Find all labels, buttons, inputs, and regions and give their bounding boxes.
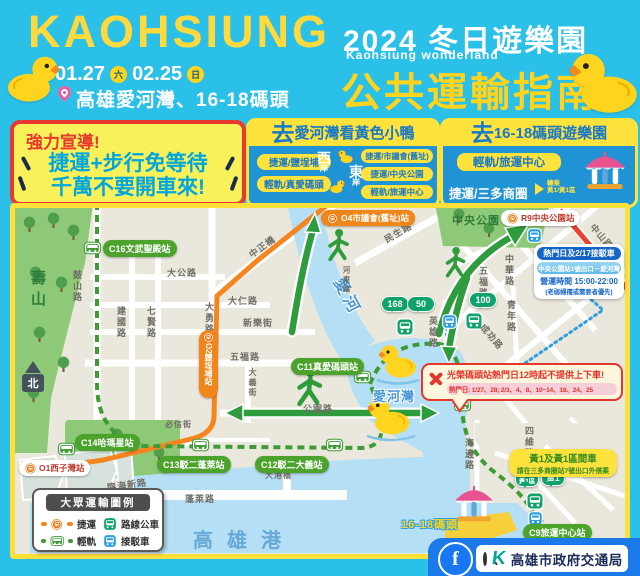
metro-line-icon <box>41 522 47 526</box>
road-label: 河東路 <box>341 266 352 295</box>
road-label: 青年路 <box>505 300 518 333</box>
transit-guide-poster: KAOHSIUNG 01.27 六 02.25 日 高雄愛河灣、16-18碼頭 … <box>0 0 640 576</box>
footer-search-bar: K 高雄市政府交通局 <box>476 545 628 572</box>
bus-stop-50: 50 <box>407 296 435 312</box>
bay-east-item: 輕軌/旅運中心 <box>361 185 433 199</box>
road-label: 大義街 <box>247 368 258 398</box>
guide-title: 公共運輸指南 <box>341 60 599 118</box>
west-coast-label: 西 岸 <box>317 151 331 173</box>
pier-item-lrt: 輕軌/旅運中心 <box>457 153 561 171</box>
area-label-harbor: 高雄港 <box>193 524 295 553</box>
lrt-line-icon <box>41 539 46 543</box>
metro-icon <box>507 213 518 224</box>
pier-item-metro: 捷運/三多商圈 <box>449 183 527 202</box>
compass-arrow-icon <box>25 353 41 373</box>
metro-icon <box>25 463 36 474</box>
road-label: 建國路 <box>115 306 128 339</box>
pier-box-title: 去16-18碼頭遊樂園 <box>443 121 635 146</box>
area-label-pier: 16-18碼頭 <box>401 516 458 532</box>
station-r9: R9中央公園站 <box>501 210 580 226</box>
y1-note: 黃1及黃1區間車 請在三多商圈站7號出口外搭乘 <box>509 449 617 477</box>
legend-item-lrt: 輕軌 <box>41 534 96 548</box>
shuttle-hours: 營運時間 15:00-22:00 <box>537 276 621 287</box>
brand-title: KAOHSIUNG <box>28 6 330 58</box>
legend-item-bus: 路線公車 <box>103 517 159 531</box>
area-label-central-park: 中央公園 <box>452 212 500 228</box>
road-label: 新樂街 <box>243 316 273 329</box>
road-label: 公園路 <box>303 402 333 415</box>
duck-icon-small <box>329 179 346 194</box>
tram-icon <box>50 535 64 547</box>
bureau-logo-icon: K <box>490 548 507 570</box>
bus-stop-168: 168 <box>381 296 409 312</box>
metro-icon <box>51 518 63 531</box>
shuttle-info-box: 熱門日及2/17接駁車 中央公園站1號出口－愛河灣 營運時間 15:00-22:… <box>534 244 624 299</box>
bus-stop-100: 100 <box>469 292 497 308</box>
station-c11: C11真愛碼頭站 <box>291 358 364 375</box>
station-o1: O1西子灣站 <box>19 460 90 476</box>
agency-name: 高雄市政府交通局 <box>511 549 623 569</box>
warning-bubble: 光榮碼頭站熱門日12時起不提供上下車! 熱門日: 1/27、28; 2/3、4、… <box>421 363 623 401</box>
area-label-shoushan: 壽山 <box>27 270 48 312</box>
notice-box: 強力宣導! 捷運+步行免等待 千萬不要開車來! <box>10 120 246 206</box>
duck-icon-right <box>566 48 640 117</box>
metro-line-icon <box>67 522 73 526</box>
event-dates: 01.27 六 02.25 日 <box>55 63 204 86</box>
shuttle-note: (老弱婦孺或需要者優先) <box>537 287 621 296</box>
facebook-icon: f <box>438 542 473 576</box>
duck-icon-left <box>4 52 62 105</box>
road-label: 五福路 <box>230 350 260 363</box>
road-label: 七賢路 <box>145 306 158 339</box>
road-label: 鼓山路 <box>71 270 84 303</box>
metro-icon <box>203 332 214 343</box>
station-c14: C14哈瑪星站 <box>75 434 140 451</box>
station-o2: O2鹽埕埔站 <box>199 330 218 398</box>
bay-transit-box: 去愛河灣看黃色小鴨 捷運/鹽埕埔 輕軌/真愛碼頭 西 岸 東 岸 捷運/市議會(… <box>246 118 440 208</box>
pier-transfer-note: 轉乘 黃1/黃1區 <box>547 180 576 195</box>
road-label: 大公路 <box>167 266 197 279</box>
carousel-icon <box>583 149 627 195</box>
area-label-bay: 愛河灣 <box>373 386 415 405</box>
road-label: 蓬萊路 <box>185 492 215 505</box>
date-start: 01.27 <box>55 63 105 86</box>
road-label: 英雄路 <box>427 316 440 349</box>
bay-west-item: 輕軌/真愛碼頭 <box>257 176 331 192</box>
station-c12: C12駁二大義站 <box>255 456 329 473</box>
bay-east-item: 捷運/中央公園 <box>361 167 433 181</box>
pier-transit-box: 去16-18碼頭遊樂園 輕軌/旅運中心 捷運/三多商圈 轉乘 黃1/黃1區 <box>440 118 638 208</box>
bay-east-item: 捷運/市議會(舊址) <box>361 149 433 163</box>
pier-box-title-prefix: 去 <box>471 121 494 145</box>
metro-icon <box>327 213 338 224</box>
date-end-day-badge: 日 <box>187 66 204 83</box>
shuttle-icon <box>103 534 117 548</box>
bay-box-title-prefix: 去 <box>271 121 294 145</box>
notice-line2: 千萬不要開車來! <box>14 171 242 201</box>
warning-dates: 熱門日: 1/27、28; 2/3、4、8、10~14、18、24、25 <box>447 383 617 395</box>
event-location: 高雄愛河灣、16-18碼頭 <box>76 85 290 112</box>
road-label: 海邊路 <box>463 438 476 471</box>
legend-title: 大眾運輸圖例 <box>46 494 150 511</box>
date-start-day-badge: 六 <box>110 66 127 83</box>
compass-north: 北 <box>22 353 44 392</box>
date-end: 02.25 <box>132 63 182 86</box>
transit-map: 壽山 中央公園 愛河 愛河灣 高雄港 16-18碼頭 大港橋 北 鼓山路 大公路… <box>10 203 630 559</box>
road-label: 大仁路 <box>228 294 258 307</box>
legend-box: 大眾運輸圖例 捷運 輕軌 <box>32 488 164 552</box>
bus-icon <box>103 517 117 531</box>
legend-item-metro: 捷運 <box>41 517 96 531</box>
road-label: 必信街 <box>165 419 192 430</box>
bay-box-title: 去愛河灣看黃色小鴨 <box>249 121 437 146</box>
station-c13: C13駁二蓬萊站 <box>157 456 231 473</box>
search-icon <box>483 552 487 566</box>
duck-icon-small <box>337 149 354 164</box>
station-o4: O4市議會(舊址)站 <box>321 210 415 226</box>
road-label: 中華路 <box>503 254 516 287</box>
shuttle-route: 中央公園站1號出口－愛河灣 <box>537 262 621 274</box>
station-c16: C16文武聖殿站 <box>103 240 177 257</box>
shuttle-title: 熱門日及2/17接駁車 <box>537 247 621 260</box>
legend-item-shuttle: 接駁車 <box>103 534 159 548</box>
lrt-line-icon <box>68 539 73 543</box>
warning-text: 光榮碼頭站熱門日12時起不提供上下車! <box>447 368 617 381</box>
